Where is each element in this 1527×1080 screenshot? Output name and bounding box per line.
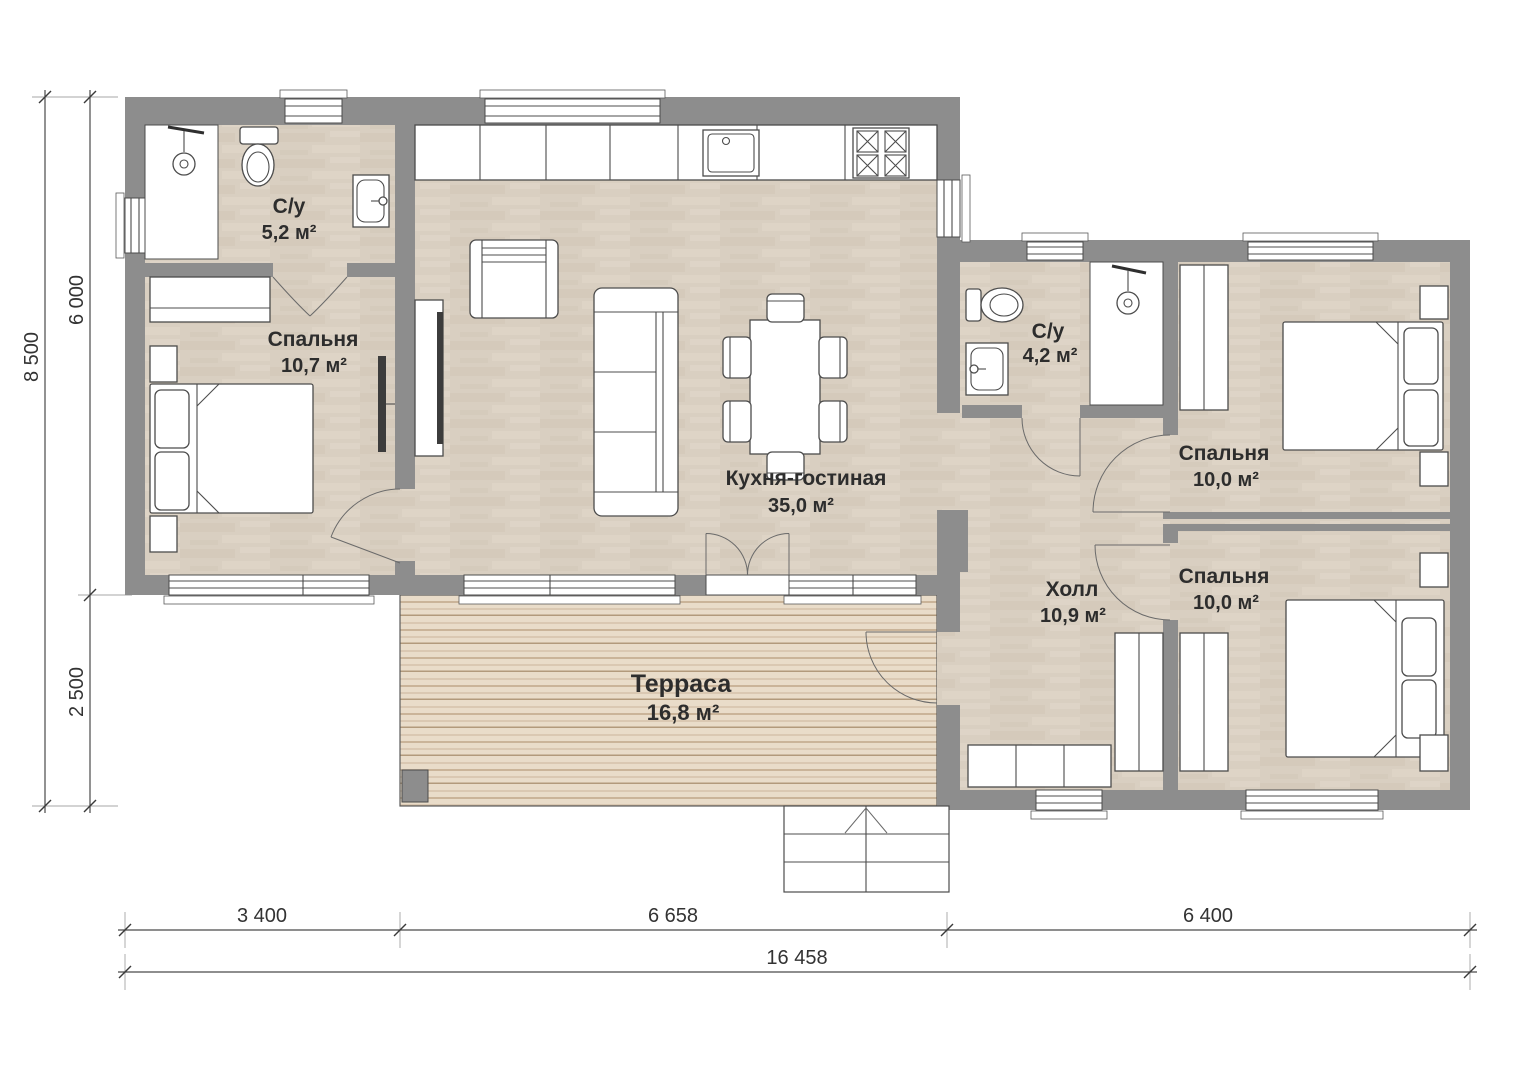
hall-cabinet [968,745,1111,787]
room-label-bathroom-left: С/у [273,195,306,218]
wall-between-bedrooms-a [1163,512,1450,519]
room-label-hall: Холл [1046,578,1099,601]
wall-exterior-left [125,97,145,595]
dim-height-lower: 2 500 [66,667,88,717]
toilet-icon-right [966,288,1023,322]
window-bath1-top [280,90,347,123]
bed-bottom-right [1286,600,1444,757]
nightstand [150,516,177,552]
kitchen-counter [415,125,937,180]
room-label-terrace: Терраса [631,670,733,698]
room-area-bedroom-top-right: 10,0 м² [1193,469,1259,491]
wall-hall-stub [960,510,968,572]
chair [819,337,847,378]
terrace-steps [784,806,949,892]
shower-area-left [145,125,218,259]
floor-plan-page: С/у 5,2 м² Спальня 10,7 м² [0,0,1527,1080]
washbasin-icon-left [353,175,389,227]
room-label-bedroom-bottom-right: Спальня [1179,565,1270,588]
bed-left [150,384,313,513]
sofa [594,288,678,516]
dresser [150,277,270,322]
nightstand [1420,735,1448,771]
window-kitchen-bottom-1 [459,575,680,604]
dim-height-total: 8 500 [21,332,43,382]
nightstand [1420,452,1448,486]
room-label-bedroom-top-right: Спальня [1179,442,1270,465]
window-hall-bottom [1031,790,1107,819]
wall-bedroom1-hall [1163,262,1178,435]
opening-hall-terrace [937,632,960,705]
wall-bedroom-kitchen-stub [395,561,415,575]
room-area-hall: 10,9 м² [1040,605,1106,627]
kitchen-sink-icon [703,130,759,176]
window-wing-top-1 [1022,233,1088,260]
dim-height-upper: 6 000 [66,275,88,325]
bed-top-right [1283,322,1443,450]
room-label-kitchen-living: Кухня-гостиная [726,467,887,490]
terrace-post [402,770,428,802]
room-label-bedroom-left: Спальня [268,328,359,351]
nightstand [150,346,177,382]
room-area-terrace: 16,8 м² [647,700,720,725]
chair [767,294,804,322]
wall-bedroom2-hall-bottom [1163,620,1178,790]
chair [819,401,847,442]
washbasin-icon-right [966,343,1008,395]
dim-width-right: 6 400 [1183,905,1233,927]
wall-bedroom-kitchen [395,125,415,489]
dimension-bottom: 3 400 6 658 6 400 16 458 [118,905,1477,990]
wall-bath2-bottom-right [1080,405,1163,418]
dim-width-total: 16 458 [766,947,827,969]
chair [723,337,751,378]
wall-bath1-bottom-left [145,263,273,277]
window-kitchen-bottom-2 [784,575,921,604]
wall-wing-bottom [937,790,1470,810]
window-bedroom2-bottom [1241,790,1383,819]
room-area-bathroom-right: 4,2 м² [1023,345,1078,367]
window-bedroom-left-bottom [164,575,374,604]
armchair [470,240,558,318]
wall-wing-right [1450,240,1470,810]
nightstand [1420,286,1448,319]
wall-bath1-bottom-right [347,263,395,277]
room-area-bathroom-left: 5,2 м² [262,222,317,244]
dimension-left: 8 500 6 000 2 500 [21,90,132,813]
stove-icon [853,128,909,178]
dim-width-middle: 6 658 [648,905,698,927]
room-area-kitchen-living: 35,0 м² [768,495,834,517]
floor-plan-drawing: С/у 5,2 м² Спальня 10,7 м² [0,0,1527,1080]
window-wing-top-2 [1243,233,1378,260]
wardrobe [1180,633,1228,771]
room-area-bedroom-left: 10,7 м² [281,355,347,377]
wall-bath2-bottom-left [962,405,1022,418]
dim-width-left: 3 400 [237,905,287,927]
window-kitchen-right [937,175,970,242]
room-area-bedroom-bottom-right: 10,0 м² [1193,592,1259,614]
wall-bedroom2-hall-top [1163,524,1178,543]
shower-area-right [1090,262,1163,405]
hall-wardrobe [1115,633,1163,771]
window-kitchen-top [480,90,665,123]
room-label-bathroom-right: С/у [1032,320,1065,343]
window-shower-left [116,193,145,258]
wardrobe [1180,265,1228,410]
nightstand [1420,553,1448,587]
tv-panel-living [415,300,443,456]
wall-wing-top [937,240,1470,262]
wall-between-bedrooms-b [1163,524,1450,531]
chair [723,401,751,442]
passage-kitchen-hall [937,413,960,510]
